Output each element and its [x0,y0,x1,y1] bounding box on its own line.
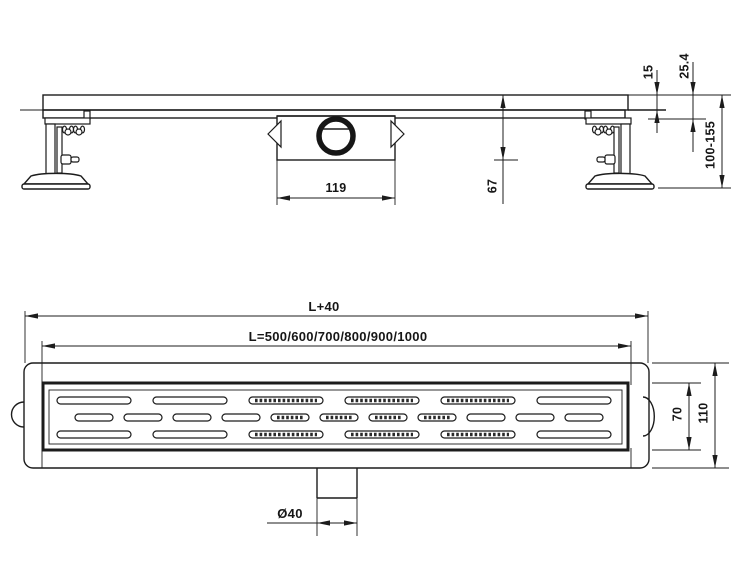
dim-label-119: 119 [325,181,346,195]
dim-trap-width: 119 [277,160,395,205]
wing-nut [74,126,85,135]
locking-bolt [605,155,615,164]
dim-label-lengths: L=500/600/700/800/900/1000 [249,329,428,344]
dim-total-width: 110 [652,363,729,468]
bottom-outlet-stub [317,468,357,498]
foot-bracket [45,118,90,124]
drain-trap-outlet [268,116,404,160]
channel-top-frame [43,95,628,110]
dim-install-height: 100-155 [703,95,722,188]
dim-label-70: 70 [670,407,684,422]
grate-slot [57,431,131,438]
grate-slot [124,414,162,421]
dim-label-67: 67 [485,179,499,194]
dim-label-100-155: 100-155 [703,121,717,169]
adjustable-foot-right [585,111,654,189]
foot-post [621,124,630,176]
clamp-wing-left [268,121,281,147]
foot-base [588,173,652,184]
foot-base [24,173,88,184]
dim-label-25-4: 25.4 [677,53,691,79]
grate-slot [320,414,358,421]
grate-slot [418,414,456,421]
dim-label-d40: Ø40 [277,506,302,521]
drain-drawing-svg: 119 67 15 25.4 100-15 [0,0,734,565]
grate-slot [537,431,611,438]
grate-slots [57,397,611,438]
dim-label-l40: L+40 [308,299,339,314]
dim-trap-height: 67 [485,95,518,204]
end-outlet-arc-left [11,402,24,427]
grate-slot [537,397,611,404]
wing-nut [593,126,604,135]
foot-post [46,124,55,176]
grate-slot [271,414,309,421]
top-plan-view: L+40 L=500/600/700/800/900/1000 70 110 [11,299,729,536]
grate-slot [173,414,211,421]
grate-slot [153,431,227,438]
adjustable-foot-left [22,111,90,189]
technical-drawing-page: { "colors": { "background": "#ffffff", "… [0,0,734,565]
grate-slot [565,414,603,421]
dim-label-110: 110 [696,402,710,423]
dim-grate-thickness: 15 [641,65,657,133]
dim-channel-lengths: L=500/600/700/800/900/1000 [42,329,631,346]
grate-slot [75,414,113,421]
grate-slot [369,414,407,421]
dim-edge-height: 25.4 [677,53,693,152]
side-elevation-view: 119 67 15 25.4 100-15 [20,53,731,205]
grate-slot [153,397,227,404]
grate-slot [516,414,554,421]
dim-label-15: 15 [641,65,655,80]
foot-bracket [586,118,631,124]
grate-slot [57,397,131,404]
grate-slot [467,414,505,421]
wing-nut [604,126,615,135]
outlet-hole [319,119,353,153]
dim-grate-width: 70 [652,383,701,450]
grate-slot [222,414,260,421]
wing-nut [63,126,74,135]
clamp-wing-right [391,121,404,147]
locking-bolt [61,155,71,164]
dim-outlet-diameter: Ø40 [267,498,357,536]
